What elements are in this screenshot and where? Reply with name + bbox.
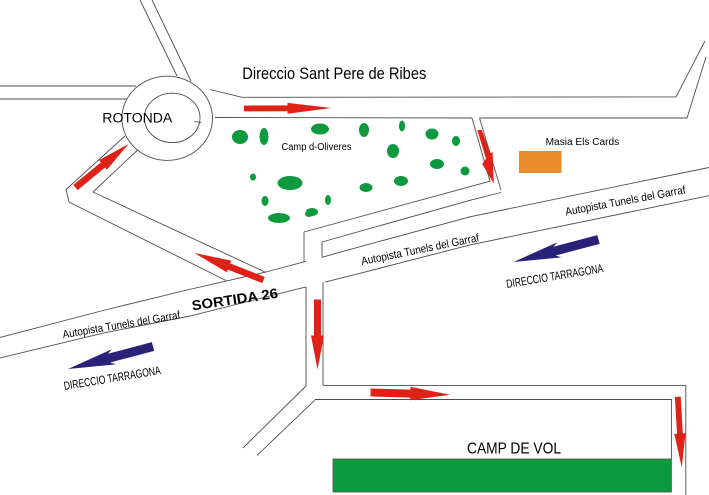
svg-text:DIRECCIO TARRAGONA: DIRECCIO TARRAGONA — [505, 261, 604, 291]
svg-text:SORTIDA 26: SORTIDA 26 — [191, 285, 280, 314]
svg-text:Masia Els Cards: Masia Els Cards — [546, 137, 620, 148]
svg-text:Camp d-Oliveres: Camp d-Oliveres — [282, 142, 352, 153]
svg-text:CAMP DE VOL: CAMP DE VOL — [467, 440, 561, 457]
svg-text:Autopista Tunels del Garraf: Autopista Tunels del Garraf — [360, 232, 481, 268]
svg-text:Direccio Sant Pere de Ribes: Direccio Sant Pere de Ribes — [242, 64, 426, 83]
svg-text:ROTONDA: ROTONDA — [102, 111, 172, 126]
svg-text:Autopista Tunels del Garraf: Autopista Tunels del Garraf — [62, 309, 182, 341]
svg-text:Autopista Tunels del Garraf: Autopista Tunels del Garraf — [564, 184, 687, 218]
